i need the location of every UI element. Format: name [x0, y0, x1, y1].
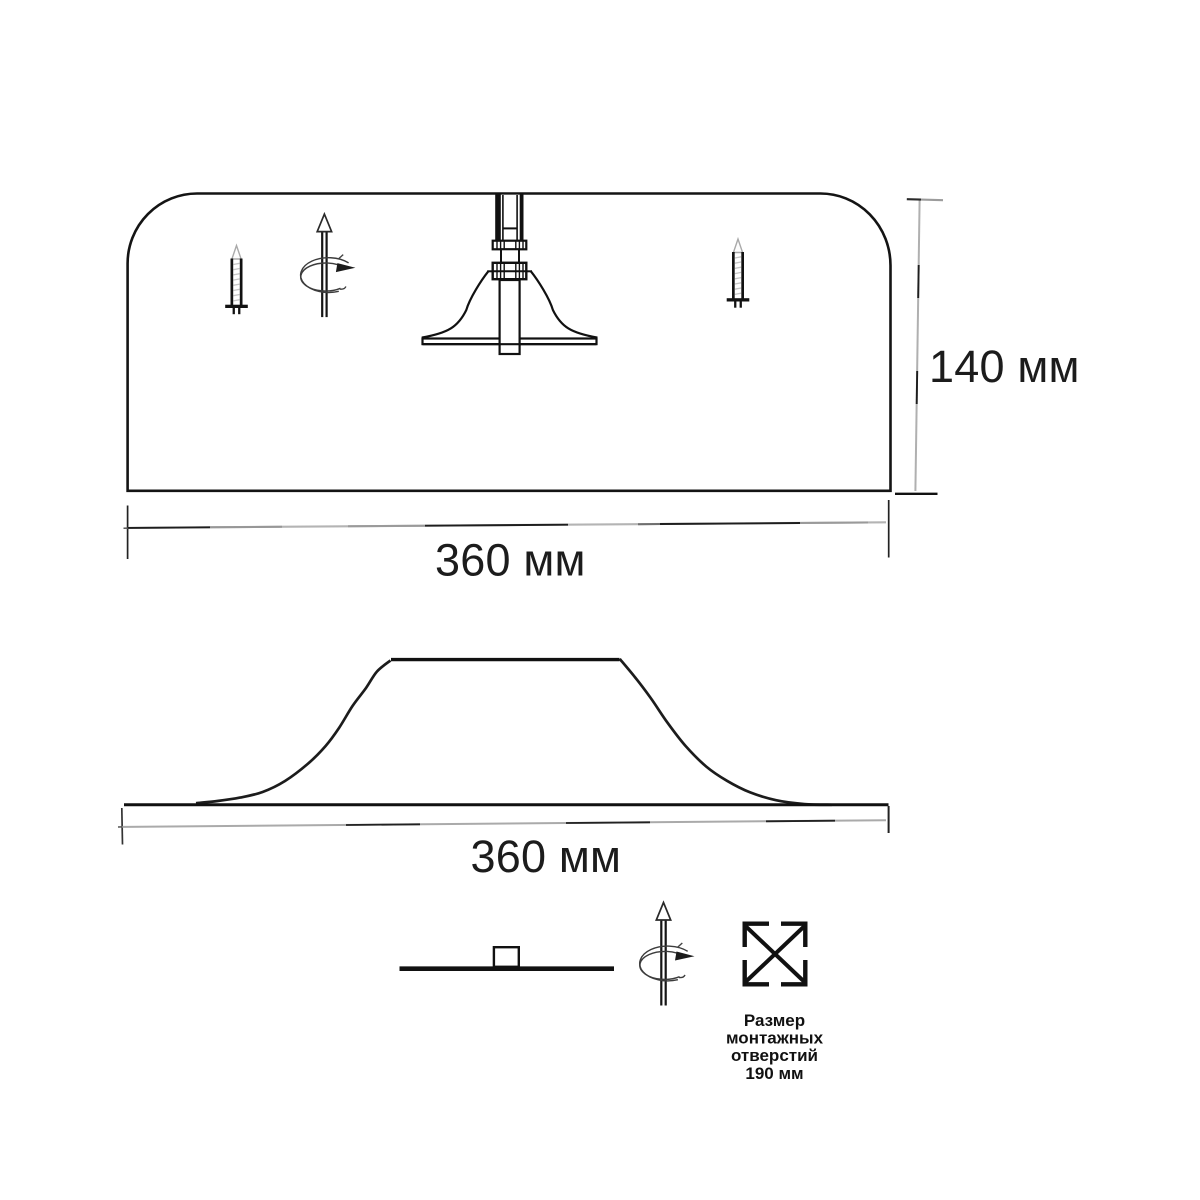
svg-text:360 мм: 360 мм — [435, 535, 586, 586]
svg-text:360 мм: 360 мм — [471, 831, 622, 882]
svg-text:монтажных: монтажных — [726, 1029, 824, 1048]
svg-text:140 мм: 140 мм — [929, 341, 1080, 392]
svg-text:Размер: Размер — [744, 1011, 805, 1030]
svg-text:190 мм: 190 мм — [745, 1064, 803, 1083]
svg-text:отверстий: отверстий — [731, 1046, 818, 1065]
